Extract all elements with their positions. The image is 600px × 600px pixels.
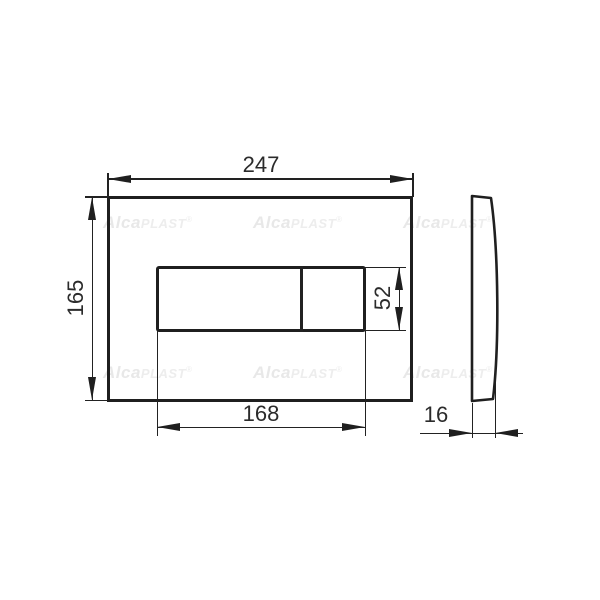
extension-line [365, 331, 367, 436]
dim-buttons-width-label: 168 [243, 403, 280, 425]
arrowhead-right-icon [390, 175, 413, 183]
arrowhead-left-icon [495, 429, 518, 437]
arrowhead-up-icon [88, 197, 96, 220]
arrowhead-left-icon [157, 423, 180, 431]
dimension-line [157, 427, 365, 429]
arrowhead-left-icon [108, 175, 131, 183]
arrowhead-right-icon [449, 429, 472, 437]
extension-line [157, 331, 159, 436]
arrowhead-down-icon [88, 377, 96, 400]
dim-plate-width-label: 247 [243, 154, 280, 176]
arrowhead-right-icon [342, 423, 365, 431]
side-profile-outline [460, 190, 510, 412]
dimension-line [92, 197, 94, 400]
extension-line [495, 360, 496, 438]
button-divider [300, 266, 303, 332]
dim-plate-depth-label: 16 [424, 404, 448, 426]
arrowhead-down-icon [395, 307, 403, 330]
dimension-line [108, 178, 413, 180]
dim-plate-height-label: 165 [65, 280, 87, 317]
dim-button-height-label: 52 [372, 286, 394, 310]
flush-buttons-outline [156, 266, 366, 332]
technical-drawing-flush-plate: AlcaPLAST® AlcaPLAST® AlcaPLAST® AlcaPLA… [0, 0, 600, 600]
arrowhead-up-icon [395, 267, 403, 290]
